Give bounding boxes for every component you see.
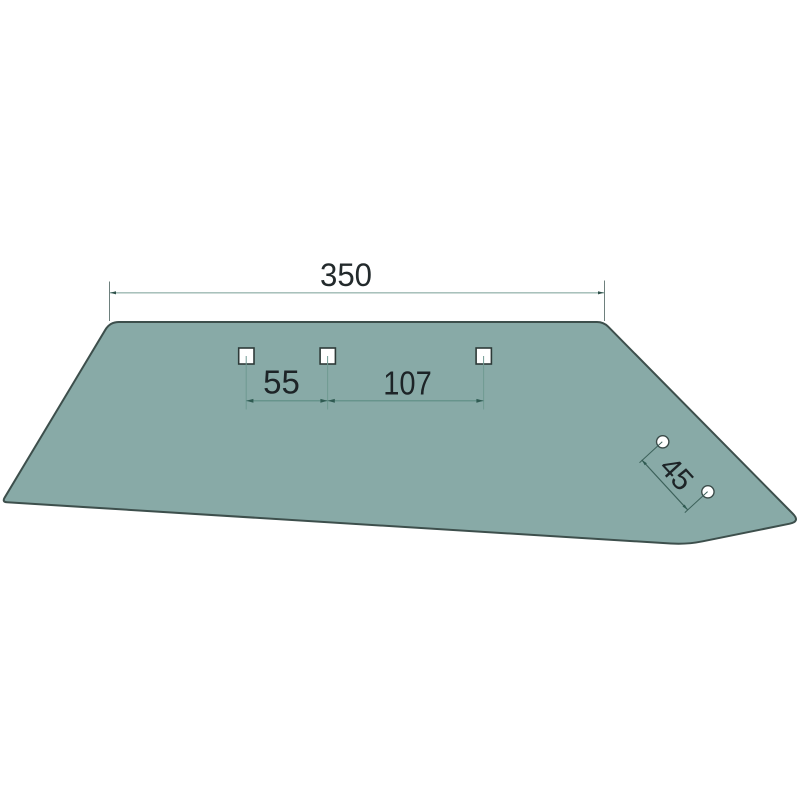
svg-text:55: 55 <box>263 364 300 401</box>
svg-text:107: 107 <box>383 365 432 402</box>
svg-text:350: 350 <box>320 257 372 293</box>
